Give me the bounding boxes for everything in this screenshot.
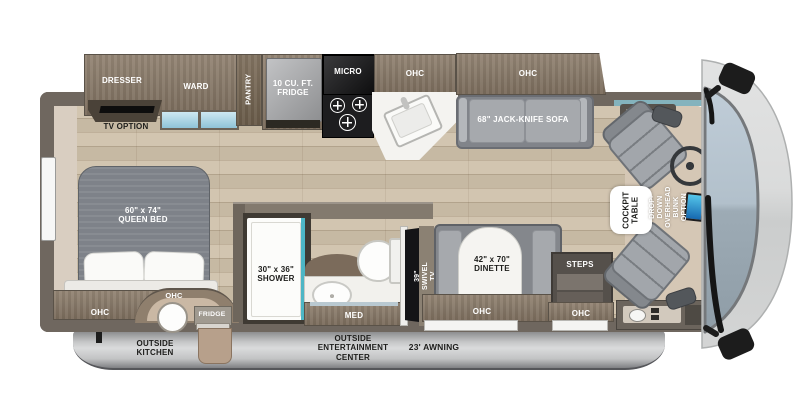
rear-window xyxy=(41,157,56,241)
med-cabinet-glass xyxy=(310,302,398,306)
ward-drawer-right xyxy=(199,110,239,130)
burner-2 xyxy=(352,97,367,112)
burner-3 xyxy=(339,114,356,131)
sofa-armrest-left xyxy=(459,98,467,142)
dinette-ohc xyxy=(422,294,552,322)
fridge10-box xyxy=(266,58,322,122)
sofa-cushion-right xyxy=(525,99,581,143)
outside-kitchen-door xyxy=(198,328,232,364)
shower-pan-inner xyxy=(251,222,301,317)
awning xyxy=(73,331,665,370)
dinette-table xyxy=(458,227,522,304)
dinette-window-sill xyxy=(424,320,518,331)
burner-1 xyxy=(330,98,345,113)
sofa-slide-ohc xyxy=(456,53,606,95)
fridge10-base xyxy=(266,120,320,128)
kitchen-sink-basin xyxy=(390,102,433,139)
rv-floorplan: OUTSIDE KITCHEN OUTSIDE ENTERTAINMENT CE… xyxy=(0,0,800,408)
outside-kitchen-sink xyxy=(157,302,188,333)
sofa-cushion-left xyxy=(469,99,525,143)
ward-drawer-left xyxy=(160,110,200,130)
front-cap xyxy=(592,40,800,370)
tv-screen xyxy=(99,106,154,113)
pantry-label: PANTRY xyxy=(245,73,254,104)
kitchen-ohc xyxy=(374,54,456,94)
pantry-label-wrap: PANTRY xyxy=(236,56,262,122)
microwave xyxy=(322,54,378,98)
